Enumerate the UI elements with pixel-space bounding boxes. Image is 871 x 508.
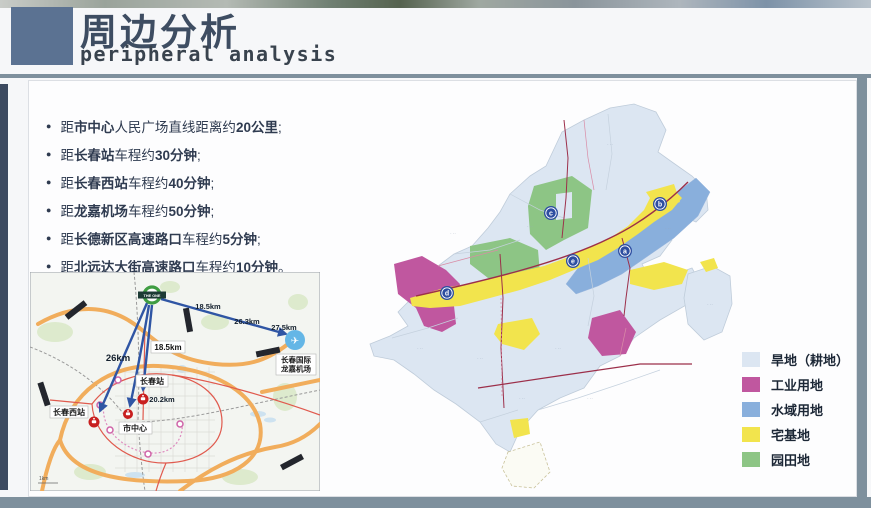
bullet-dot: ● <box>46 122 51 131</box>
svg-text:· ··: · ·· <box>477 356 483 361</box>
bullet-dot: ● <box>46 178 51 187</box>
marker-c: c <box>544 206 558 220</box>
legend-item: 水域用地 <box>742 402 864 417</box>
svg-text:a: a <box>623 249 627 256</box>
legend-item: 园田地 <box>742 452 864 467</box>
airport-label-2: 龙嘉机场 <box>281 364 311 374</box>
legend-label: 宅基地 <box>771 425 810 444</box>
bullet-item: ●距市中心人民广场直线距离约20公里; <box>46 112 346 140</box>
svg-text:· ··: · ·· <box>665 226 671 231</box>
distance-airport-a: 18.5km <box>195 302 221 311</box>
airport-label-1: 长春国际 <box>281 355 311 365</box>
legend-swatch <box>742 377 760 392</box>
svg-text:e: e <box>571 259 575 266</box>
bullet-item: ●距龙嘉机场车程约50分钟; <box>46 196 346 224</box>
legend-swatch <box>742 427 760 442</box>
location-map: ✈ THE ONE 长春站 市中心 长春西站 长春国际 龙嘉机场 <box>30 272 320 491</box>
station-label: 长春站 <box>140 376 164 386</box>
svg-text:c: c <box>549 211 553 218</box>
slide: 周边分析 peripheral analysis ●距市中心人民广场直线距离约2… <box>0 0 871 508</box>
svg-text:· ··: · ·· <box>519 396 525 401</box>
legend-label: 旱地（耕地） <box>771 350 849 369</box>
bullet-dot: ● <box>46 234 51 243</box>
svg-text:d: d <box>445 291 449 298</box>
title-divider <box>0 74 871 78</box>
legend-swatch <box>742 352 760 367</box>
marker-b: b <box>653 197 667 211</box>
left-edge-bar <box>0 84 8 490</box>
bottom-edge-bar <box>0 497 871 508</box>
page-subtitle: peripheral analysis <box>80 42 337 66</box>
legend-label: 工业用地 <box>771 375 823 394</box>
distance-airport-c: 27.5km <box>271 323 297 332</box>
bullet-dot: ● <box>46 150 51 159</box>
svg-text:· ··: · ·· <box>587 396 593 401</box>
city-center-label: 市中心 <box>123 423 147 433</box>
distance-station: 20.2km <box>149 395 175 404</box>
svg-text:· ··: · ·· <box>555 346 561 351</box>
west-station-label: 长春西站 <box>53 407 85 417</box>
landuse-map: · ·· · ·· · ·· · ·· · ·· · ·· · ·· · ·· … <box>358 98 742 490</box>
bullet-dot: ● <box>46 262 51 271</box>
distance-airport-b: 26.3km <box>234 317 260 326</box>
distance-west: 26km <box>106 353 130 364</box>
legend-swatch <box>742 402 760 417</box>
airport-marker: ✈ <box>285 330 305 350</box>
legend-item: 工业用地 <box>742 377 864 392</box>
scale-label: 1km <box>39 476 48 482</box>
legend-item: 旱地（耕地） <box>742 352 864 367</box>
bullet-item: ●距长春西站车程约40分钟; <box>46 168 346 196</box>
bullet-dot: ● <box>46 206 51 215</box>
title-accent-square <box>11 7 73 65</box>
marker-d: d <box>440 286 454 300</box>
svg-text:· ··: · ·· <box>450 231 456 236</box>
bullet-item: ●距长春站车程约30分钟; <box>46 140 346 168</box>
legend-item: 宅基地 <box>742 427 864 442</box>
project-roundel-label: THE ONE <box>144 294 161 298</box>
legend-label: 园田地 <box>771 450 810 469</box>
distance-center-box: 18.5km <box>154 343 181 352</box>
svg-text:· ··: · ·· <box>607 142 613 147</box>
plane-icon: ✈ <box>291 336 299 347</box>
bullet-item: ●距长德新区高速路口车程约5分钟; <box>46 224 346 252</box>
landuse-legend: 旱地（耕地）工业用地水域用地宅基地园田地 <box>742 352 864 477</box>
svg-text:· ··: · ·· <box>707 302 713 307</box>
bullet-list: ●距市中心人民广场直线距离约20公里;●距长春站车程约30分钟;●距长春西站车程… <box>46 112 346 280</box>
svg-text:· ··: · ·· <box>527 224 533 229</box>
legend-label: 水域用地 <box>771 400 823 419</box>
svg-text:b: b <box>658 202 662 209</box>
marker-a: a <box>618 244 632 258</box>
svg-text:· ··: · ·· <box>417 346 423 351</box>
legend-swatch <box>742 452 760 467</box>
marker-e: e <box>566 254 580 268</box>
